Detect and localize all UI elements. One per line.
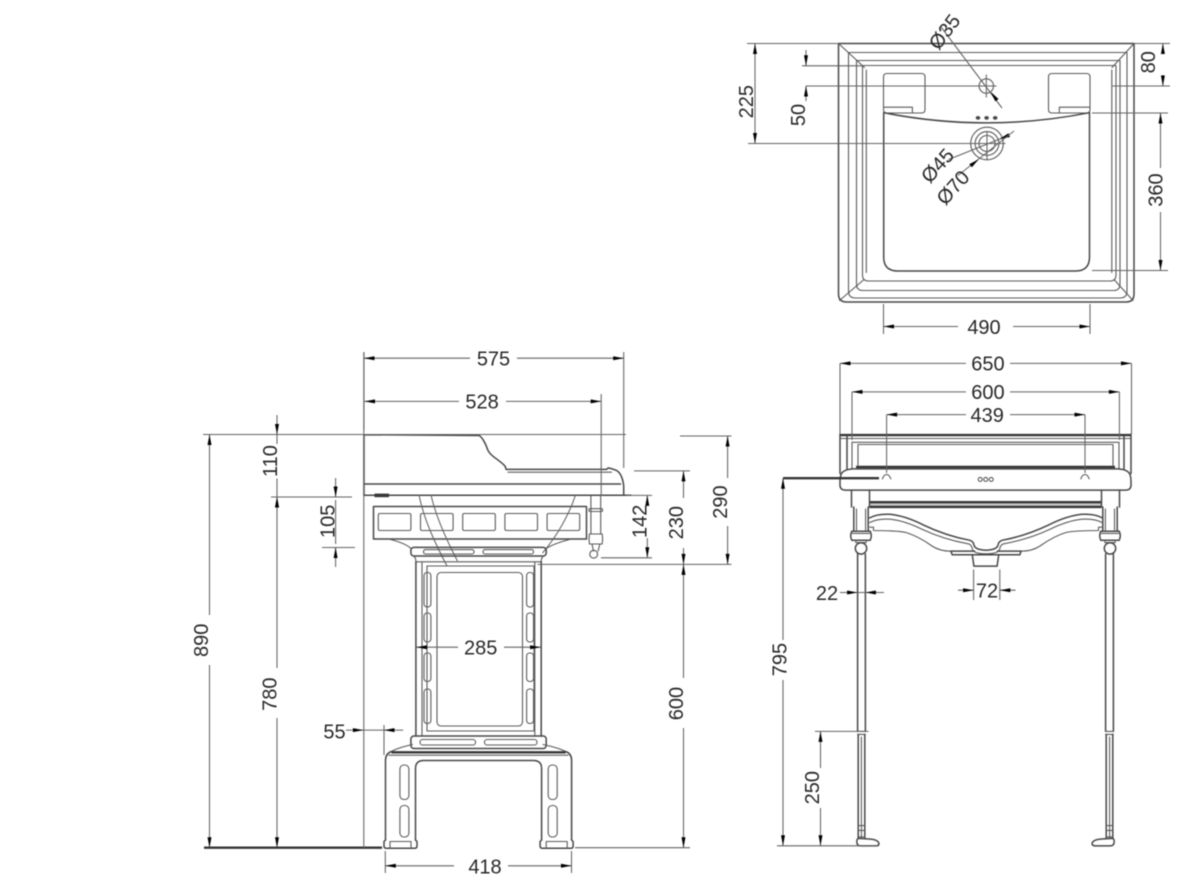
svg-text:890: 890 [191,624,213,657]
svg-text:360: 360 [1146,173,1168,206]
svg-text:142: 142 [629,505,651,538]
svg-text:230: 230 [666,506,688,539]
svg-text:55: 55 [323,721,345,743]
svg-text:290: 290 [710,485,732,518]
svg-text:50: 50 [788,104,810,126]
svg-text:575: 575 [477,348,510,370]
svg-text:600: 600 [666,687,688,720]
svg-text:528: 528 [465,392,498,414]
svg-text:780: 780 [259,678,281,711]
svg-text:439: 439 [971,405,1004,427]
svg-text:225: 225 [736,85,758,118]
svg-text:110: 110 [260,445,282,477]
svg-text:650: 650 [971,354,1004,376]
svg-text:490: 490 [967,317,1000,339]
svg-text:80: 80 [1138,51,1160,73]
svg-text:105: 105 [318,505,340,538]
svg-text:795: 795 [770,643,792,676]
svg-text:285: 285 [464,637,497,659]
svg-text:418: 418 [468,857,501,879]
svg-text:22: 22 [816,583,838,605]
svg-text:250: 250 [802,771,824,804]
svg-text:600: 600 [971,382,1004,404]
svg-text:72: 72 [976,580,998,602]
